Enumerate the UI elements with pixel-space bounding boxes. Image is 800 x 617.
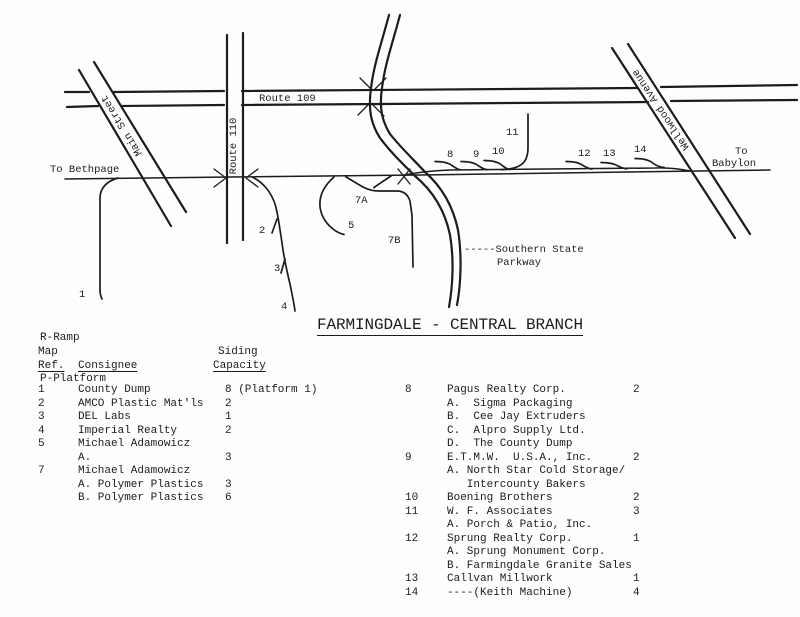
header-consignee: Consignee	[78, 360, 137, 374]
map-ref-cell: 5	[38, 438, 78, 452]
table-row: A. Sprung Monument Corp.	[405, 546, 705, 560]
southern-state-parkway-label-line1: -----Southern State	[464, 244, 584, 256]
table-row: D. The County Dump	[405, 438, 705, 452]
siding-label-7b: 7B	[388, 235, 401, 247]
siding-label-10: 10	[492, 146, 505, 158]
consignee-cell: Intercounty Bakers	[447, 479, 633, 493]
table-row: B. Polymer Plastics6	[38, 492, 378, 506]
map-ref-cell: 2	[38, 398, 78, 412]
table-row: 4Imperial Realty2	[38, 425, 378, 439]
capacity-cell: 2	[633, 492, 640, 506]
consignee-cell: Imperial Realty	[78, 425, 225, 439]
map-ref-cell: 13	[405, 573, 447, 587]
consignee-cell: A. North Star Cold Storage/	[447, 465, 633, 479]
map-ref-cell: 9	[405, 452, 447, 466]
map-ref-cell: 7	[38, 465, 78, 479]
siding-label-5: 5	[348, 220, 354, 232]
table-row: 1County Dump8 (Platform 1)	[38, 384, 378, 398]
wellwood-avenue-label: Wellwood Avenue	[630, 66, 692, 151]
railroad-map: Route 109 Route 110 Main Street Wellwood…	[0, 0, 800, 340]
consignee-cell: E.T.M.W. U.S.A., Inc.	[447, 452, 633, 466]
consignee-cell: ----(Keith Machine)	[447, 587, 633, 601]
southern-state-parkway-road	[370, 15, 461, 307]
to-babylon-label-line2: Babylon	[712, 158, 756, 170]
map-ref-cell: 12	[405, 533, 447, 547]
consignee-cell: Pagus Realty Corp.	[447, 384, 633, 398]
consignee-cell: DEL Labs	[78, 411, 225, 425]
header-ref: Ref.	[38, 360, 64, 374]
table-rows-right: 8Pagus Realty Corp.2 A. Sigma Packaging …	[405, 384, 705, 600]
table-row: 12Sprung Realty Corp.1	[405, 533, 705, 547]
siding-label-12: 12	[578, 148, 591, 160]
siding-label-4: 4	[281, 301, 287, 313]
consignee-cell: Callvan Millwork	[447, 573, 633, 587]
table-row: 3DEL Labs1	[38, 411, 378, 425]
consignee-cell: C. Alpro Supply Ltd.	[447, 425, 633, 439]
map-ref-cell: 1	[38, 384, 78, 398]
table-row: Intercounty Bakers	[405, 479, 705, 493]
to-bethpage-label: To Bethpage	[50, 164, 119, 176]
consignee-cell: A. Porch & Patio, Inc.	[447, 519, 633, 533]
map-ref-cell: 4	[38, 425, 78, 439]
capacity-cell: 3	[633, 506, 640, 520]
consignee-cell: B. Polymer Plastics	[78, 492, 225, 506]
table-row: 13Callvan Millwork1	[405, 573, 705, 587]
siding-label-3: 3	[274, 263, 280, 275]
map-ref-cell: 10	[405, 492, 447, 506]
consignee-cell: W. F. Associates	[447, 506, 633, 520]
capacity-cell: 1	[633, 573, 640, 587]
consignee-cell: Sprung Realty Corp.	[447, 533, 633, 547]
siding-label-9: 9	[473, 149, 479, 161]
legend-ramp: R-Ramp	[40, 332, 106, 346]
consignee-table-right: 8Pagus Realty Corp.2 A. Sigma Packaging …	[405, 384, 705, 609]
table-row: 9E.T.M.W. U.S.A., Inc.2	[405, 452, 705, 466]
header-capacity: Capacity	[213, 360, 266, 374]
siding-label-11: 11	[506, 127, 519, 139]
capacity-cell: 2	[633, 384, 640, 398]
consignee-cell: D. The County Dump	[447, 438, 633, 452]
siding-label-8: 8	[447, 149, 453, 161]
siding-label-2: 2	[259, 225, 265, 237]
table-row: 8Pagus Realty Corp.2	[405, 384, 705, 398]
southern-state-parkway-label-line2: Parkway	[497, 257, 541, 269]
table-row: B. Farmingdale Granite Sales	[405, 560, 705, 574]
capacity-cell: 2	[225, 398, 232, 412]
capacity-cell: 1	[633, 533, 640, 547]
to-babylon-label-line1: To	[735, 146, 748, 158]
consignee-cell: Boening Brothers	[447, 492, 633, 506]
consignee-cell: B. Cee Jay Extruders	[447, 411, 633, 425]
table-row: 5Michael Adamowicz	[38, 438, 378, 452]
consignee-cell: A. Sprung Monument Corp.	[447, 546, 633, 560]
capacity-cell: 2	[225, 425, 232, 439]
table-row: A.3	[38, 452, 378, 466]
page-title: FARMINGDALE - CENTRAL BRANCH	[317, 316, 583, 336]
header-map: Map	[38, 346, 58, 360]
capacity-cell: 3	[225, 452, 232, 466]
table-row: B. Cee Jay Extruders	[405, 411, 705, 425]
map-ref-cell: 14	[405, 587, 447, 601]
header-siding: Siding	[218, 346, 258, 360]
table-row: 14----(Keith Machine)4	[405, 587, 705, 601]
consignee-cell: Michael Adamowicz	[78, 438, 225, 452]
capacity-cell: 8 (Platform 1)	[225, 384, 317, 398]
siding-label-14: 14	[634, 144, 647, 156]
table-row: 10Boening Brothers2	[405, 492, 705, 506]
consignee-cell: A. Polymer Plastics	[78, 479, 225, 493]
map-ref-cell: 3	[38, 411, 78, 425]
table-row: A. Sigma Packaging	[405, 398, 705, 412]
route-109-road	[65, 85, 797, 107]
table-row: C. Alpro Supply Ltd.	[405, 425, 705, 439]
capacity-cell: 6	[225, 492, 232, 506]
table-row: A. Polymer Plastics3	[38, 479, 378, 493]
consignee-cell: A. Sigma Packaging	[447, 398, 633, 412]
consignee-cell: B. Farmingdale Granite Sales	[447, 560, 633, 574]
capacity-cell: 4	[633, 587, 640, 601]
scanned-map-page: Route 109 Route 110 Main Street Wellwood…	[0, 0, 800, 617]
map-ref-cell: 11	[405, 506, 447, 520]
route-109-label: Route 109	[259, 93, 316, 105]
table-row: 7Michael Adamowicz	[38, 465, 378, 479]
table-row: A. North Star Cold Storage/	[405, 465, 705, 479]
consignee-cell: Michael Adamowicz	[78, 465, 225, 479]
map-ref-cell: 8	[405, 384, 447, 398]
siding-label-7a: 7A	[355, 195, 368, 207]
capacity-cell: 3	[225, 479, 232, 493]
table-row: A. Porch & Patio, Inc.	[405, 519, 705, 533]
siding-label-13: 13	[603, 148, 616, 160]
consignee-table-left: Map Ref. Consignee Siding Capacity 1Coun…	[38, 346, 378, 516]
consignee-cell: County Dump	[78, 384, 225, 398]
siding-tracks	[100, 114, 664, 311]
capacity-cell: 2	[633, 452, 640, 466]
consignee-cell: A.	[78, 452, 225, 466]
table-rows-left: 1County Dump8 (Platform 1) 2AMCO Plastic…	[38, 384, 378, 506]
capacity-cell: 1	[225, 411, 232, 425]
table-row: 11W. F. Associates3	[405, 506, 705, 520]
siding-label-1: 1	[79, 289, 85, 301]
main-street-label: Main Street	[99, 92, 145, 157]
consignee-cell: AMCO Plastic Mat'ls	[78, 398, 225, 412]
route-110-label: Route 110	[228, 118, 240, 175]
table-row: 2AMCO Plastic Mat'ls2	[38, 398, 378, 412]
